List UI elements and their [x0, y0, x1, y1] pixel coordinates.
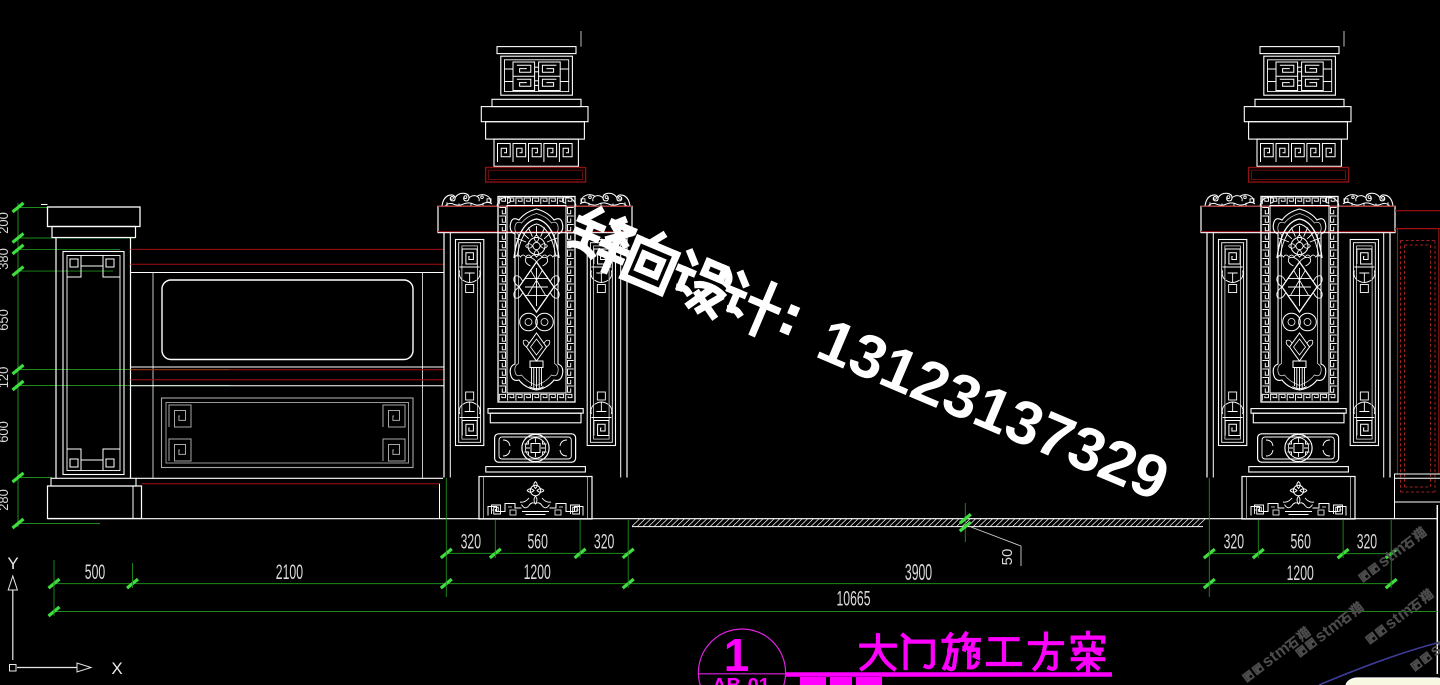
- svg-text:AB-01: AB-01: [712, 675, 770, 685]
- svg-text:380: 380: [0, 248, 11, 270]
- svg-text:1200: 1200: [524, 561, 551, 584]
- svg-text:560: 560: [1291, 531, 1311, 554]
- svg-text:3900: 3900: [905, 559, 932, 585]
- svg-text:200: 200: [0, 212, 11, 234]
- svg-text:320: 320: [594, 531, 614, 554]
- svg-text:120: 120: [0, 367, 11, 389]
- svg-text:600: 600: [0, 421, 11, 443]
- svg-text:X: X: [111, 659, 122, 678]
- svg-text:1200: 1200: [1287, 562, 1314, 585]
- svg-text:320: 320: [461, 531, 481, 554]
- svg-text:320: 320: [1357, 531, 1377, 554]
- svg-text:560: 560: [528, 531, 548, 554]
- svg-text:650: 650: [0, 309, 11, 331]
- svg-text:320: 320: [1224, 531, 1244, 554]
- svg-text:280: 280: [0, 489, 11, 511]
- svg-text:2100: 2100: [276, 561, 303, 584]
- svg-text:50: 50: [999, 549, 1016, 566]
- svg-text:1: 1: [724, 629, 750, 681]
- svg-text:10665: 10665: [837, 588, 871, 611]
- svg-text:Y: Y: [7, 554, 18, 573]
- svg-text:500: 500: [85, 561, 105, 584]
